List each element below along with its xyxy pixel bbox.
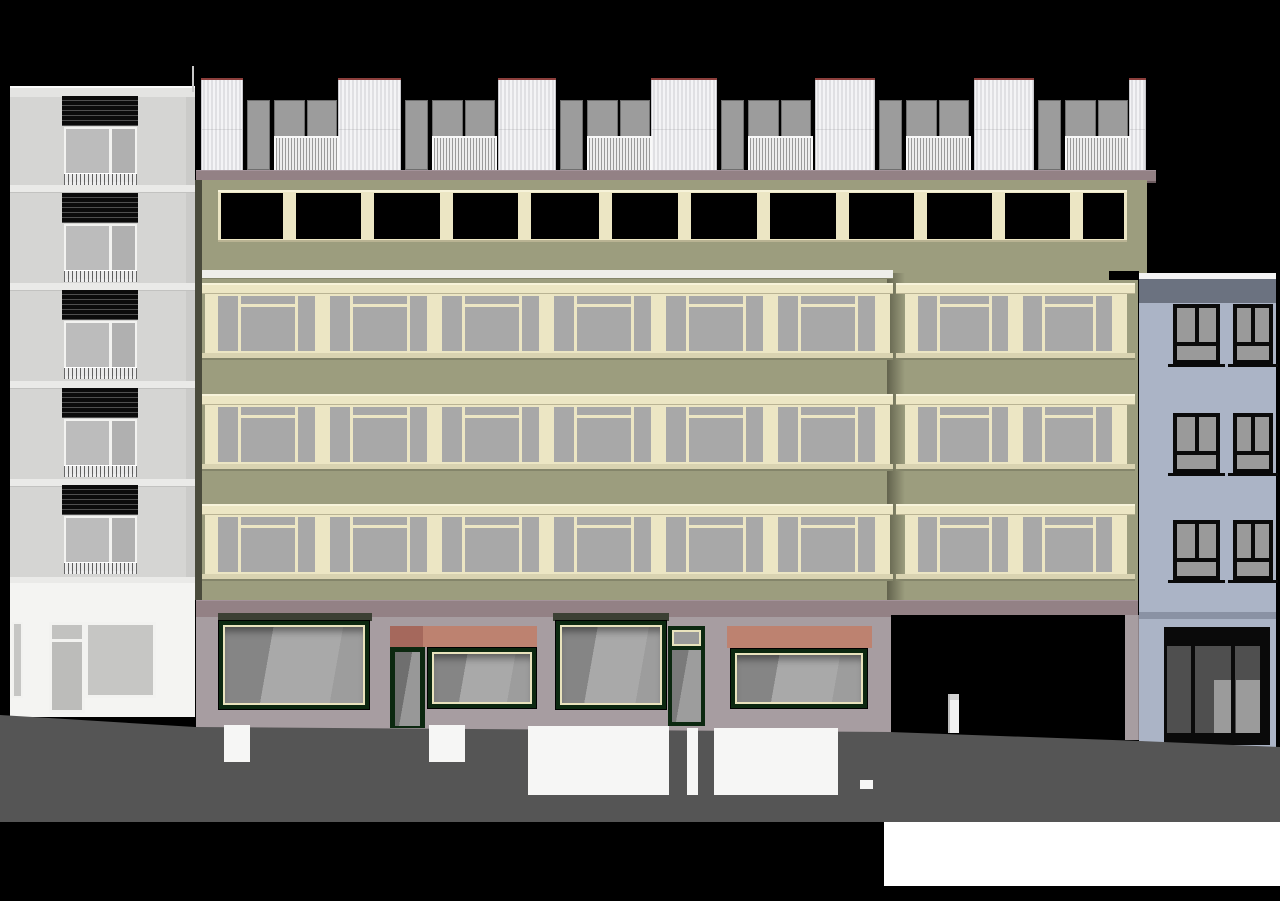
window-pane-transom-top (353, 407, 407, 415)
window-pane-narrow (1023, 517, 1042, 572)
window-pane-transom-top (801, 407, 855, 415)
window-pane-wide (465, 307, 519, 351)
window-pane-narrow (992, 407, 1008, 462)
window-pane-wide (940, 307, 989, 351)
left-building-edge-column (186, 97, 195, 583)
window-pane-narrow (992, 296, 1008, 351)
canopy-line (202, 270, 893, 279)
ribbon-sill (202, 574, 893, 581)
left-seam-shadow (195, 180, 202, 600)
window-pane-narrow (298, 517, 315, 572)
shop-window-glass (562, 627, 660, 703)
blue-storefront-panel-light (1236, 680, 1260, 733)
window-pane-narrow (522, 517, 539, 572)
window-pane-narrow (442, 517, 462, 572)
left-entrance-transom-glass (52, 625, 82, 639)
attic-window-opening (374, 193, 440, 239)
passage-door-leaf (948, 694, 959, 733)
window-pane-narrow (554, 407, 574, 462)
window-pane-narrow (522, 296, 539, 351)
window-pane-narrow (778, 407, 798, 462)
blue-window-bottom-panel (1177, 346, 1216, 360)
window-pane-narrow (778, 296, 798, 351)
window-pane-transom-top (1045, 517, 1094, 525)
attic-window-opening (453, 193, 518, 239)
blue-window-bottom-panel (1237, 455, 1269, 469)
roof-balcony-railing (274, 136, 339, 173)
left-roller-shutter-box (62, 96, 138, 126)
window-pane-transom-top (465, 517, 519, 525)
window-pane-narrow (918, 296, 937, 351)
roof-gray-panel (620, 100, 651, 138)
window-pane-transom-top (801, 517, 855, 525)
window-pane-transom-top (940, 517, 989, 525)
blue-window-bottom-panel (1237, 562, 1269, 576)
window-pane-narrow (634, 296, 651, 351)
roof-white-corrugated-panel (815, 78, 875, 172)
shop-window-glass (434, 654, 530, 702)
blue-window-sill (1228, 580, 1278, 583)
window-pane-wide (465, 418, 519, 462)
window-pane-narrow (442, 296, 462, 351)
left-floor-slab-band (10, 185, 195, 193)
window-pane-wide (689, 307, 743, 351)
blue-window-bottom-panel (1177, 455, 1216, 469)
window-pane-transom-top (577, 296, 631, 304)
window-pane-wide (940, 418, 989, 462)
window-pane-wide (465, 528, 519, 572)
left-balcony-railing (64, 562, 137, 574)
blue-window-bottom-panel (1177, 562, 1216, 576)
window-pane-narrow (554, 296, 574, 351)
window-pane-wide (241, 307, 295, 351)
roof-edge-notch (1109, 271, 1139, 280)
window-pane-narrow (1096, 407, 1112, 462)
attic-window-opening (296, 193, 361, 239)
passage-opening (891, 615, 1125, 745)
left-roller-shutter-box (62, 193, 138, 223)
window-pane-transom-top (940, 407, 989, 415)
attic-window-opening (531, 193, 599, 239)
window-pane-transom-top (353, 296, 407, 304)
window-pane-narrow (1023, 296, 1042, 351)
blue-window-pane (1199, 524, 1216, 558)
blue-window-pane (1199, 308, 1216, 342)
window-pane-narrow (858, 407, 875, 462)
blue-window-pane (1255, 308, 1269, 342)
attic-window-opening (770, 193, 836, 239)
left-roof-antenna (192, 66, 194, 92)
sidewalk-entry-mat (714, 728, 838, 795)
attic-window-opening (1005, 193, 1070, 239)
blue-storefront-panel-light (1214, 680, 1231, 733)
attic-window-opening (221, 193, 283, 239)
roof-white-corrugated-panel (651, 78, 717, 172)
left-entrance-door-glass (52, 642, 82, 710)
window-pane-narrow (1096, 517, 1112, 572)
window-pane-narrow (666, 296, 686, 351)
window-pane-narrow (992, 517, 1008, 572)
sidewalk-entry-mat (528, 726, 669, 795)
roof-gray-panel (405, 100, 428, 170)
blue-window-sill (1168, 580, 1225, 583)
roof-balcony-railing (906, 136, 971, 173)
window-pane-narrow (554, 517, 574, 572)
shop-door-glass (672, 650, 701, 722)
window-pane-wide (577, 528, 631, 572)
shop-window-glass (737, 655, 861, 702)
window-pane-transom-top (241, 407, 295, 415)
ribbon-head-band (202, 394, 893, 405)
window-pane-narrow (666, 407, 686, 462)
shop-awning-dark-segment (390, 626, 423, 647)
ribbon-sill (896, 353, 1135, 360)
window-pane-narrow (858, 296, 875, 351)
roof-gray-panel (1038, 100, 1061, 170)
window-pane-transom-top (577, 517, 631, 525)
roof-gray-panel (939, 100, 970, 138)
window-pane-narrow (634, 407, 651, 462)
roof-gray-panel (879, 100, 902, 170)
left-roller-shutter-box (62, 485, 138, 515)
window-pane-narrow (410, 517, 427, 572)
blue-window-pane (1255, 524, 1269, 558)
window-pane-wide (577, 418, 631, 462)
left-balcony-railing (64, 173, 137, 185)
window-pane-transom-top (1045, 296, 1094, 304)
roof-balcony-railing (1065, 136, 1130, 173)
window-pane-transom-top (689, 407, 743, 415)
window-pane-transom-top (689, 517, 743, 525)
window-pane-wide (577, 307, 631, 351)
roof-gray-panel (721, 100, 744, 170)
window-pane-wide (801, 418, 855, 462)
roof-gray-panel (247, 100, 270, 170)
window-pane-wide (241, 528, 295, 572)
window-pane-wide (1045, 418, 1094, 462)
window-pane-wide (1045, 528, 1094, 572)
roof-gray-panel (432, 100, 463, 138)
blue-window-bottom-panel (1237, 346, 1269, 360)
ribbon-head-band (896, 504, 1135, 515)
blue-window-pane (1255, 417, 1269, 451)
window-pane-narrow (522, 407, 539, 462)
roof-balcony-railing (432, 136, 497, 173)
left-ground-window-small (12, 622, 23, 698)
window-pane-wide (353, 418, 407, 462)
roof-white-corrugated-panel (974, 78, 1034, 172)
ribbon-window-frame (905, 405, 1127, 464)
ribbon-sill (202, 353, 893, 360)
window-pane-wide (241, 418, 295, 462)
window-pane-wide (801, 307, 855, 351)
blue-window-sill (1228, 473, 1278, 476)
left-balcony-railing (64, 367, 137, 379)
blue-building-parapet (1139, 279, 1276, 303)
blue-window-pane (1199, 417, 1216, 451)
window-pane-narrow (918, 517, 937, 572)
window-pane-wide (353, 528, 407, 572)
ribbon-sill (202, 464, 893, 471)
left-balcony-railing (64, 465, 137, 477)
roof-gray-panel (560, 100, 583, 170)
blue-ground-line (1139, 612, 1276, 619)
blue-window-sill (1228, 364, 1278, 367)
window-pane-narrow (634, 517, 651, 572)
shop-transom-glass-inner (674, 632, 699, 644)
window-pane-transom-top (353, 517, 407, 525)
window-pane-transom-top (465, 296, 519, 304)
roof-gray-panel (748, 100, 779, 138)
attic-window-opening (849, 193, 914, 239)
left-ground-window-big-glass (88, 625, 153, 695)
roof-white-corrugated-panel (1129, 78, 1146, 172)
window-pane-transom-top (940, 296, 989, 304)
window-pane-wide (689, 418, 743, 462)
attic-window-opening (1083, 193, 1124, 239)
roof-gray-panel (465, 100, 496, 138)
window-pane-narrow (1023, 407, 1042, 462)
window-pane-narrow (746, 407, 763, 462)
window-pane-transom-top (1045, 407, 1094, 415)
shop-window-glass (225, 627, 363, 703)
window-pane-narrow (442, 407, 462, 462)
window-pane-transom-top (241, 296, 295, 304)
roof-gray-panel (587, 100, 618, 138)
blue-window-sill (1168, 473, 1225, 476)
roof-gray-panel (1065, 100, 1096, 138)
window-pane-narrow (218, 517, 238, 572)
window-pane-transom-top (801, 296, 855, 304)
roof-balcony-railing (587, 136, 652, 173)
blue-window-pane (1177, 417, 1195, 451)
window-pane-transom-top (689, 296, 743, 304)
window-pane-transom-top (577, 407, 631, 415)
attic-window-opening (691, 193, 757, 239)
left-roller-shutter-box (62, 388, 138, 418)
roof-white-corrugated-panel (201, 78, 243, 172)
roof-white-corrugated-panel (498, 78, 556, 172)
roof-balcony-railing (748, 136, 813, 173)
window-pane-narrow (410, 296, 427, 351)
ribbon-head-band (896, 394, 1135, 405)
window-pane-narrow (330, 517, 350, 572)
sidewalk-entry-mat (687, 728, 698, 795)
attic-window-opening (927, 193, 992, 239)
ribbon-window-frame (905, 515, 1127, 574)
roof-gray-panel (1098, 100, 1129, 138)
window-pane-narrow (298, 296, 315, 351)
window-pane-narrow (666, 517, 686, 572)
window-pane-narrow (778, 517, 798, 572)
ribbon-head-band (202, 283, 893, 294)
attic-window-opening (612, 193, 678, 239)
window-pane-narrow (298, 407, 315, 462)
roof-gray-panel (906, 100, 937, 138)
shop-door-glass (395, 652, 420, 726)
shop-awning (727, 626, 872, 648)
blue-window-pane (1177, 524, 1195, 558)
blue-window-pane (1237, 524, 1251, 558)
sidewalk-entry-mat (224, 725, 250, 762)
left-roller-shutter-box (62, 290, 138, 320)
window-pane-narrow (746, 517, 763, 572)
passage-right-pier (1125, 615, 1140, 740)
window-pane-transom-top (241, 517, 295, 525)
window-pane-narrow (330, 296, 350, 351)
window-pane-narrow (218, 296, 238, 351)
window-pane-narrow (218, 407, 238, 462)
roof-gray-panel (307, 100, 338, 138)
blue-window-pane (1237, 417, 1251, 451)
window-pane-narrow (746, 296, 763, 351)
bottom-white-strip (884, 822, 1280, 886)
window-pane-wide (940, 528, 989, 572)
blue-window-pane (1237, 308, 1251, 342)
window-pane-wide (353, 307, 407, 351)
window-pane-narrow (1096, 296, 1112, 351)
ribbon-window-frame (905, 294, 1127, 353)
ribbon-sill (896, 574, 1135, 581)
window-pane-narrow (918, 407, 937, 462)
window-pane-wide (801, 528, 855, 572)
window-pane-transom-top (465, 407, 519, 415)
ribbon-head-band (202, 504, 893, 515)
blue-window-pane (1177, 308, 1195, 342)
window-pane-wide (1045, 307, 1094, 351)
blue-storefront-panel-dark (1167, 646, 1191, 733)
window-pane-wide (689, 528, 743, 572)
ribbon-head-band (896, 283, 1135, 294)
left-balcony-railing (64, 270, 137, 282)
roof-white-corrugated-panel (338, 78, 401, 172)
roof-gray-panel (274, 100, 305, 138)
window-pane-narrow (410, 407, 427, 462)
window-pane-narrow (330, 407, 350, 462)
sidewalk-entry-mat (429, 725, 465, 762)
ribbon-sill (896, 464, 1135, 471)
sidewalk-entry-mat (860, 780, 873, 789)
window-pane-narrow (858, 517, 875, 572)
blue-window-sill (1168, 364, 1225, 367)
elevation-scene (0, 0, 1280, 901)
roof-gray-panel (781, 100, 812, 138)
